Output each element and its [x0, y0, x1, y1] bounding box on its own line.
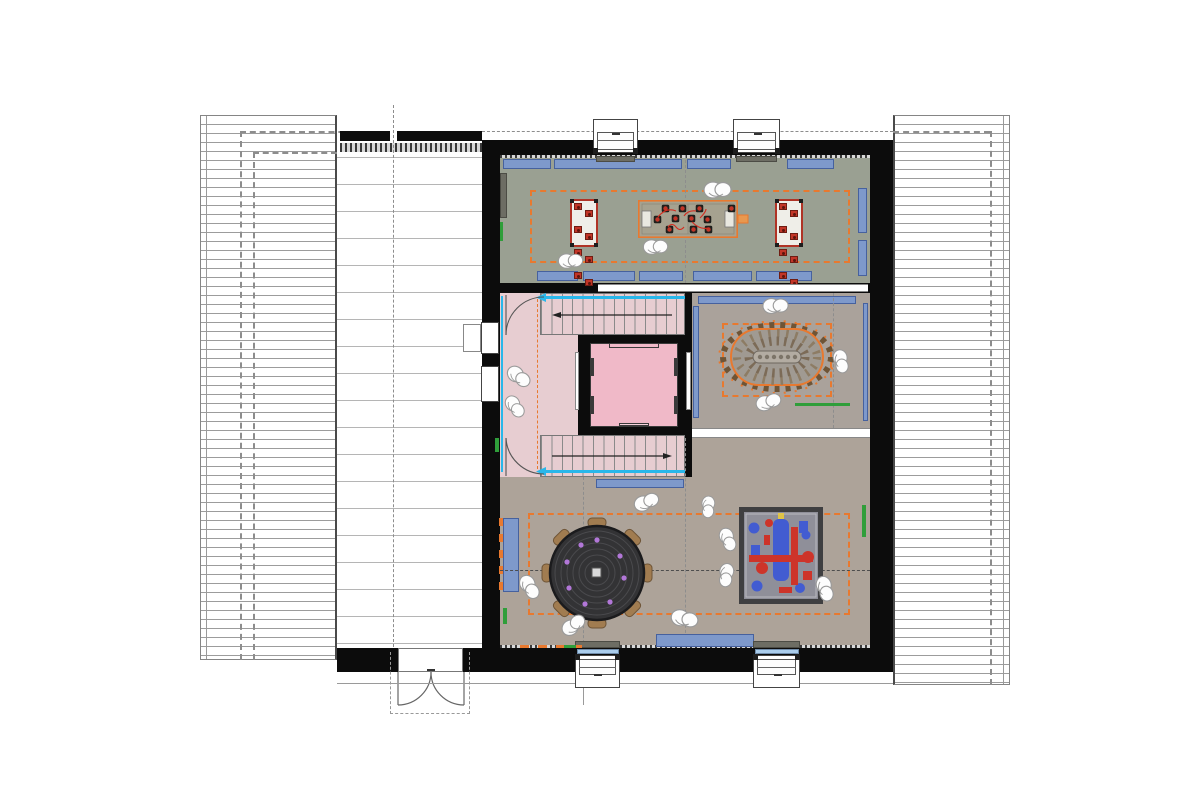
roof-hidden-edge-above-building — [482, 131, 893, 132]
window — [481, 366, 499, 402]
dormer-window — [575, 655, 620, 688]
bench — [537, 271, 578, 281]
room-multipurpose-extension — [692, 438, 870, 478]
roof-left-inner-line — [206, 116, 207, 659]
foosball-table — [638, 200, 750, 238]
bench — [693, 306, 699, 418]
group-table — [570, 199, 598, 247]
bench — [639, 271, 683, 281]
window-sill — [596, 156, 635, 162]
stair-direction-arrow-down — [552, 452, 672, 460]
bench — [863, 303, 868, 421]
green-marker — [862, 505, 866, 537]
dormer-window — [733, 119, 780, 153]
dormer-window — [753, 655, 800, 688]
bench — [858, 240, 867, 276]
bean-bag — [762, 296, 790, 316]
wall-pier — [500, 173, 507, 218]
window-sill-outer — [463, 324, 481, 352]
shaft-side-door — [686, 352, 691, 410]
terrace-top-wall — [340, 131, 482, 141]
sliding-partition — [598, 284, 868, 292]
terrace-centerline — [393, 105, 394, 672]
terrace-top-wall-hatch — [340, 143, 482, 152]
bean-bag — [641, 238, 671, 256]
bean-bag — [692, 494, 718, 520]
door-swing — [503, 295, 547, 339]
group-table — [775, 199, 803, 247]
window-sill-blue — [755, 649, 799, 654]
window-sill — [753, 641, 800, 648]
terrace-lower-roof — [337, 131, 482, 672]
roof-right-hidden-edge — [990, 131, 992, 685]
bench — [693, 271, 752, 281]
bench — [503, 159, 551, 169]
dormer-window — [593, 119, 638, 153]
roof-left-hidden-edge-1 — [240, 131, 242, 660]
roof-hidden-edge-top-right — [893, 131, 990, 133]
roof-hidden-edge-top-2 — [253, 152, 337, 154]
escape-route-line — [545, 296, 685, 299]
bench — [596, 479, 684, 488]
window — [481, 322, 499, 354]
window-sill-blue — [577, 649, 619, 654]
bench — [687, 159, 731, 169]
shaft-side-door — [575, 352, 579, 410]
terrace-bottom-wall-left — [337, 648, 398, 672]
bench — [656, 634, 754, 647]
bean-bag — [557, 252, 585, 270]
bench — [787, 159, 834, 169]
green-marker — [500, 222, 503, 241]
green-marker — [503, 608, 507, 624]
bean-bag — [703, 180, 733, 200]
sliding-partition — [692, 428, 870, 438]
escape-route-line — [545, 470, 685, 473]
round-table — [540, 516, 654, 630]
green-marker — [795, 403, 850, 406]
roof-right — [893, 115, 1010, 685]
roof-left-hidden-edge-2 — [253, 152, 255, 660]
bean-bag — [708, 560, 738, 590]
bench — [858, 188, 867, 233]
stair-direction-arrow-up — [552, 311, 672, 319]
roof-right-inner-line — [1003, 116, 1004, 684]
green-marker — [495, 438, 499, 452]
floor-plan-canvas — [0, 0, 1200, 800]
orange-wall-ticks — [499, 518, 503, 592]
door-swing — [503, 432, 547, 476]
window-sill — [736, 156, 777, 162]
green-marker — [564, 645, 576, 648]
roof-left — [200, 115, 337, 660]
elevator-car — [590, 343, 678, 427]
